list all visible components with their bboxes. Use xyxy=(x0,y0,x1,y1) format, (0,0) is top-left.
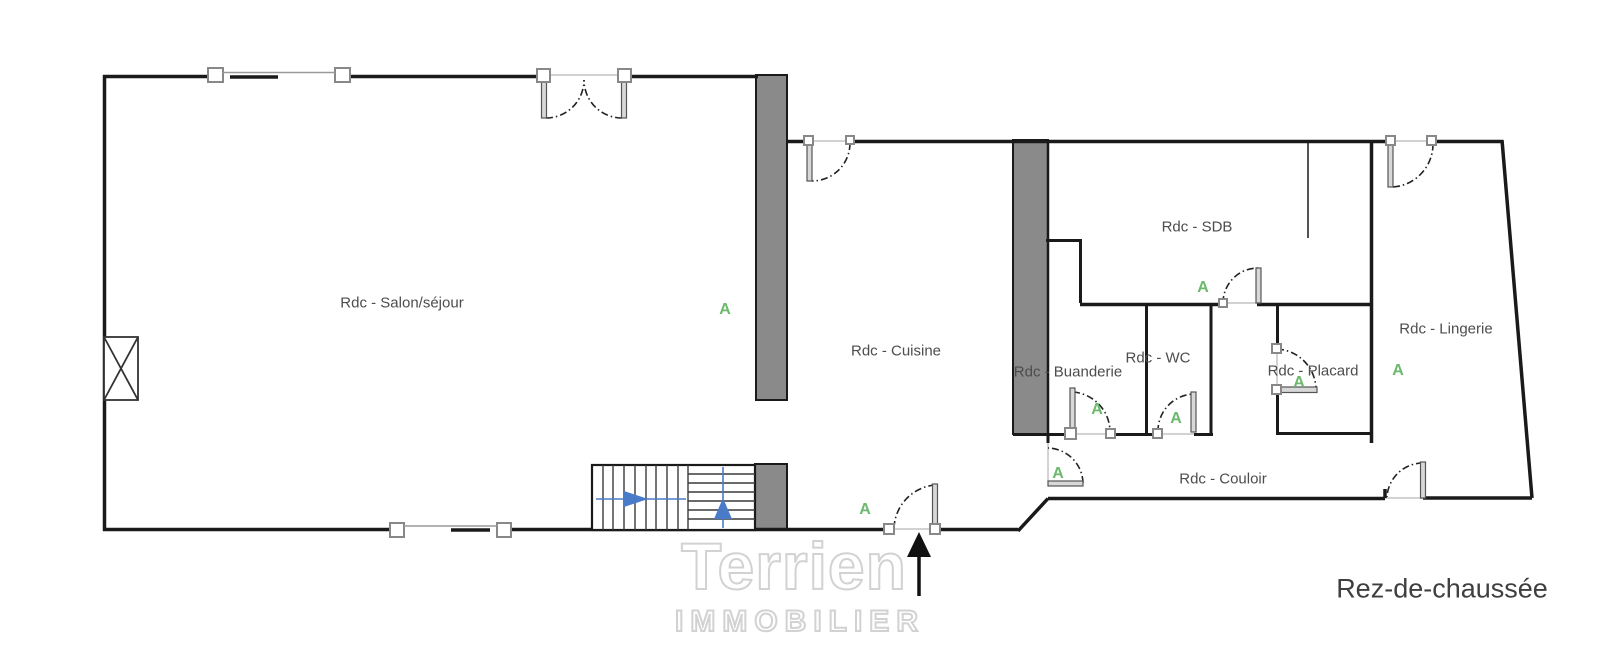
hinge-post xyxy=(804,136,813,145)
couloir-right-door-arc xyxy=(1387,463,1423,497)
room-label-placard: Rdc - Placard xyxy=(1268,363,1359,380)
door-post xyxy=(930,524,940,534)
salon-doubledoor-leaf-left xyxy=(542,80,547,118)
section-marker-wc: A xyxy=(1170,410,1182,428)
entrance-door-arc xyxy=(894,485,935,528)
salon-doubledoor-arc-right xyxy=(584,80,622,118)
door-post xyxy=(618,69,631,82)
hinge-post xyxy=(1386,136,1395,145)
bearing-wall-stairs xyxy=(755,464,787,530)
bearing-wall-cuisine-buanderie xyxy=(1013,140,1048,434)
lingerie-door-leaf xyxy=(1388,143,1393,187)
bearing-wall-salon-cuisine xyxy=(756,75,787,400)
window-post xyxy=(335,68,350,82)
sdb-door-leaf xyxy=(1256,268,1261,303)
window-post xyxy=(390,523,404,537)
hinge-post xyxy=(1427,136,1436,145)
hinge-post xyxy=(1272,385,1281,394)
hinge-post xyxy=(1065,428,1076,439)
watermark-subtitle: IMMOBILIER xyxy=(675,605,925,639)
entrance-door-leaf xyxy=(933,484,938,528)
room-label-lingerie: Rdc - Lingerie xyxy=(1399,321,1492,338)
room-label-buanderie: Rdc - Buanderie xyxy=(1014,364,1122,381)
floor-title: Rez-de-chaussée xyxy=(1336,574,1548,605)
section-marker-placard: A xyxy=(1293,374,1305,392)
hinge-post xyxy=(1272,344,1281,353)
sdb-door-arc xyxy=(1223,268,1258,303)
section-marker-sdb: A xyxy=(1197,279,1209,297)
room-label-salon-sejour: Rdc - Salon/séjour xyxy=(340,295,463,312)
couloir-right-door-leaf xyxy=(1421,462,1426,498)
buanderie-door-leaf xyxy=(1070,388,1075,428)
room-label-couloir: Rdc - Couloir xyxy=(1179,471,1267,488)
section-marker-salon: A xyxy=(719,301,731,319)
hinge-post xyxy=(1153,429,1162,438)
salon-doubledoor-leaf-right xyxy=(622,80,627,118)
room-label-sdb: Rdc - SDB xyxy=(1162,219,1233,236)
salon-doubledoor-arc-left xyxy=(546,80,584,118)
room-label-wc: Rdc - WC xyxy=(1126,350,1191,367)
hinge-post xyxy=(1219,299,1227,307)
cuisine-door-leaf xyxy=(807,143,812,181)
section-marker-entrance: A xyxy=(859,501,871,519)
wc-door-leaf xyxy=(1191,392,1196,432)
section-marker-lingerie: A xyxy=(1392,362,1404,380)
cuisine-door-arc xyxy=(812,143,850,181)
section-marker-couloir: A xyxy=(1052,465,1064,483)
stairs xyxy=(592,465,755,530)
chimney-box xyxy=(104,337,138,400)
watermark-brand: Terrien xyxy=(681,528,907,604)
window-post xyxy=(208,68,223,82)
section-marker-buanderie: A xyxy=(1091,401,1103,419)
window-post xyxy=(497,523,511,537)
hinge-post xyxy=(1106,429,1115,438)
floorplan-canvas: Rdc - Salon/séjour Rdc - Cuisine Rdc - S… xyxy=(0,0,1600,651)
lingerie-door-arc xyxy=(1393,144,1433,187)
room-label-cuisine: Rdc - Cuisine xyxy=(851,343,941,360)
hinge-post xyxy=(846,136,854,144)
door-post xyxy=(537,69,550,82)
